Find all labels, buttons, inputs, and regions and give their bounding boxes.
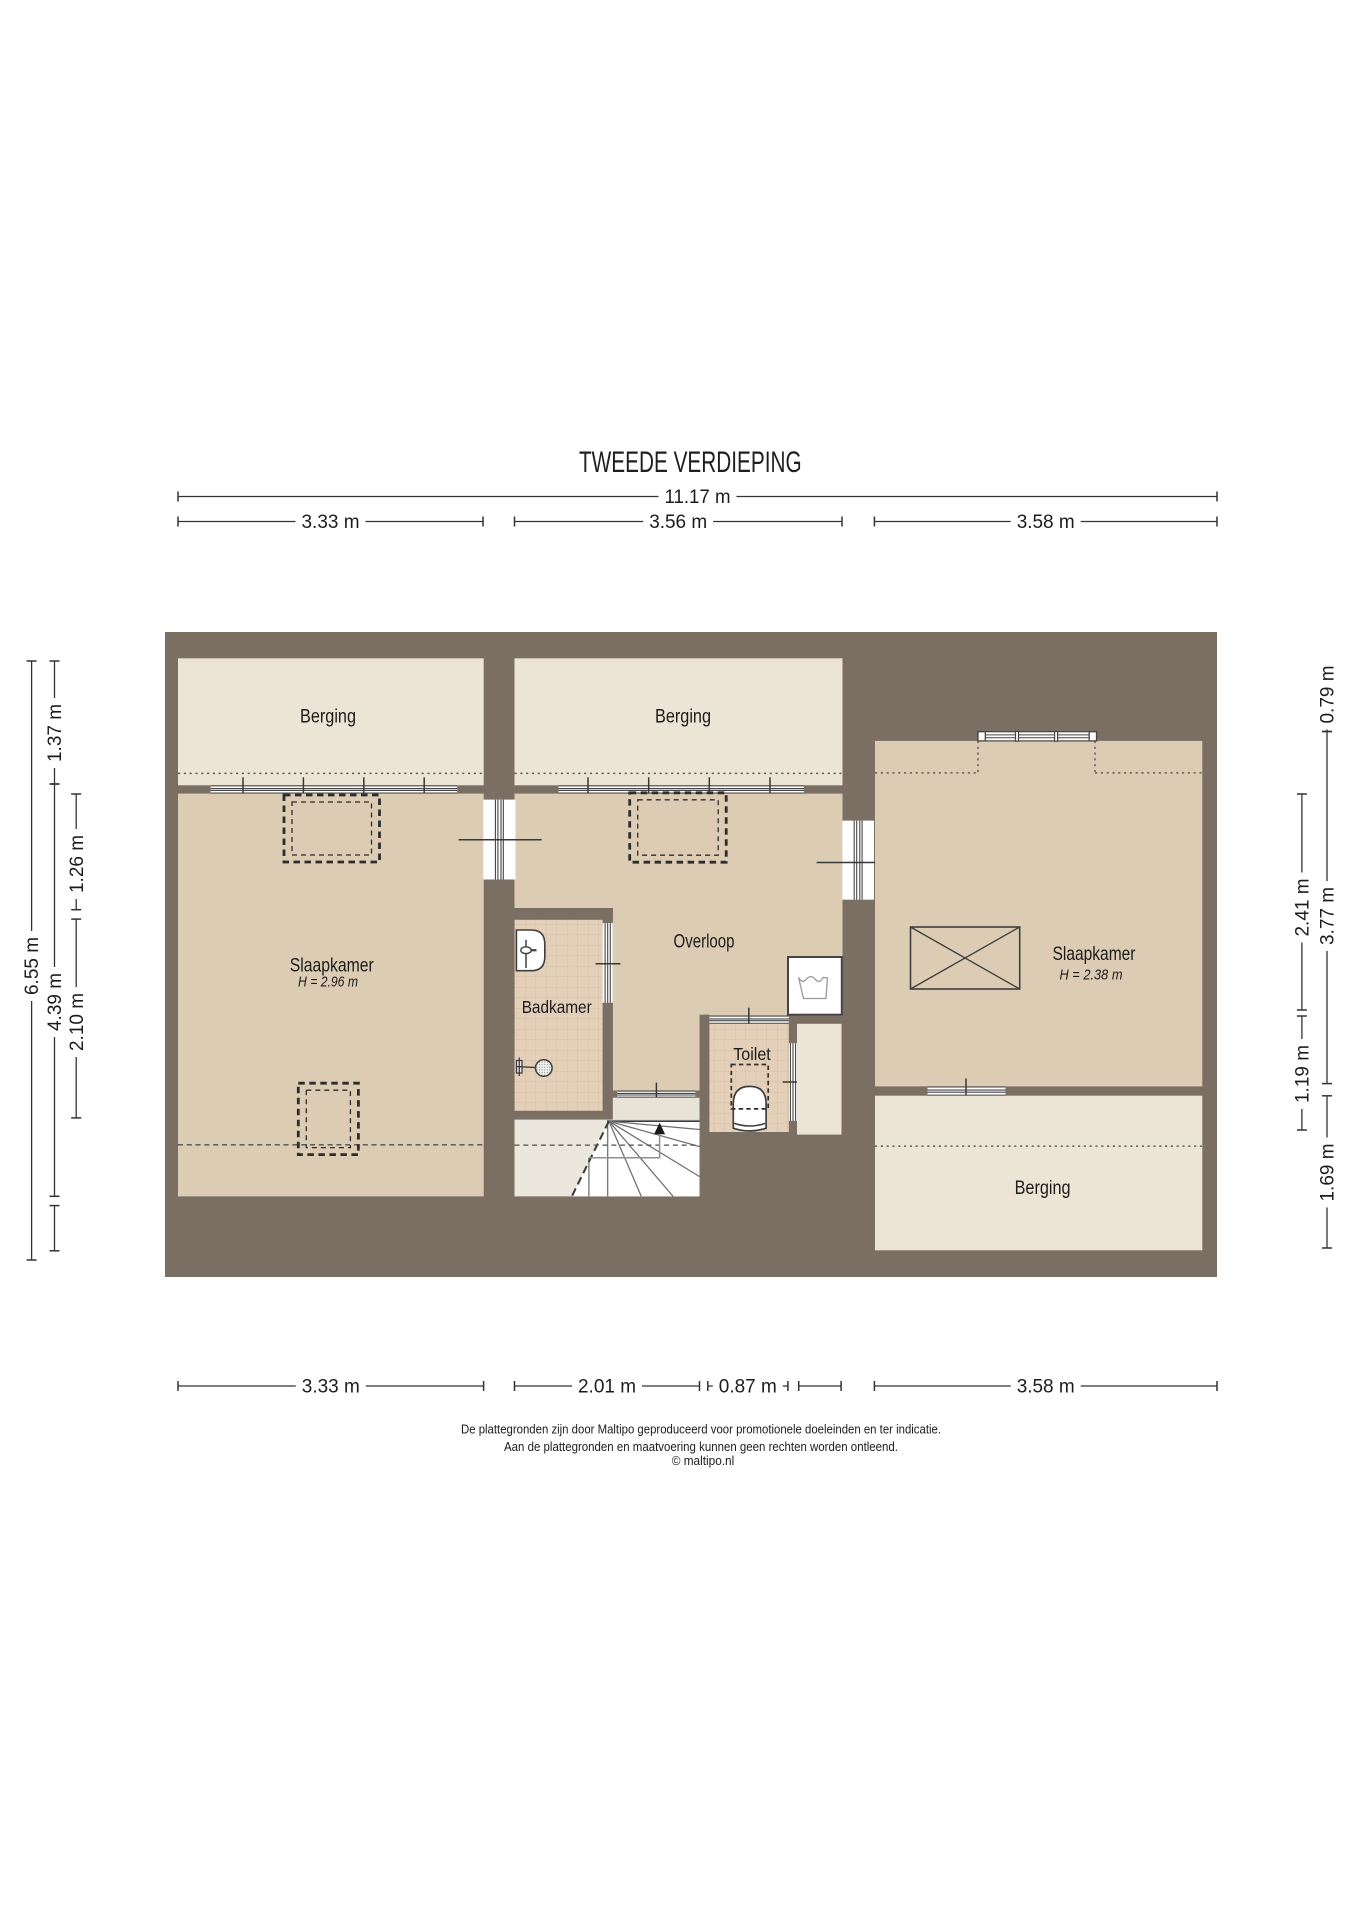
svg-text:6.55 m: 6.55 m xyxy=(22,937,43,995)
svg-text:Slaapkamer: Slaapkamer xyxy=(1053,943,1136,965)
svg-text:2.10 m: 2.10 m xyxy=(67,993,88,1051)
svg-text:TWEEDE VERDIEPING: TWEEDE VERDIEPING xyxy=(579,446,802,479)
svg-text:1.26 m: 1.26 m xyxy=(67,835,88,893)
svg-text:© maltipo.nl: © maltipo.nl xyxy=(672,1453,735,1468)
svg-text:4.39 m: 4.39 m xyxy=(45,973,66,1031)
svg-text:De plattegronden zijn door Mal: De plattegronden zijn door Maltipo gepro… xyxy=(461,1422,941,1437)
svg-text:1.37 m: 1.37 m xyxy=(45,704,66,762)
svg-text:2.01 m: 2.01 m xyxy=(578,1377,636,1398)
svg-text:1.69 m: 1.69 m xyxy=(1318,1144,1339,1202)
svg-text:H = 2.38 m: H = 2.38 m xyxy=(1060,966,1123,983)
svg-text:Berging: Berging xyxy=(655,707,711,728)
svg-text:Berging: Berging xyxy=(1015,1178,1071,1199)
svg-text:0.87 m: 0.87 m xyxy=(719,1377,777,1398)
svg-text:3.77 m: 3.77 m xyxy=(1318,887,1339,945)
svg-text:0.79 m: 0.79 m xyxy=(1318,666,1339,724)
svg-text:3.58 m: 3.58 m xyxy=(1017,512,1075,533)
svg-text:Toilet: Toilet xyxy=(733,1044,771,1064)
svg-text:11.17 m: 11.17 m xyxy=(665,487,731,508)
svg-text:3.33 m: 3.33 m xyxy=(302,1377,360,1398)
svg-text:Berging: Berging xyxy=(300,707,356,728)
svg-text:H = 2.96 m: H = 2.96 m xyxy=(298,973,358,990)
svg-text:Aan de plattegronden en maatvo: Aan de plattegronden en maatvoering kunn… xyxy=(504,1439,898,1454)
svg-text:Badkamer: Badkamer xyxy=(522,997,592,1017)
svg-text:3.56 m: 3.56 m xyxy=(649,512,707,533)
svg-text:Overloop: Overloop xyxy=(674,931,735,953)
svg-text:3.33 m: 3.33 m xyxy=(302,512,360,533)
svg-text:1.19 m: 1.19 m xyxy=(1293,1045,1314,1103)
svg-text:2.41 m: 2.41 m xyxy=(1293,879,1314,937)
svg-text:3.58 m: 3.58 m xyxy=(1017,1377,1075,1398)
